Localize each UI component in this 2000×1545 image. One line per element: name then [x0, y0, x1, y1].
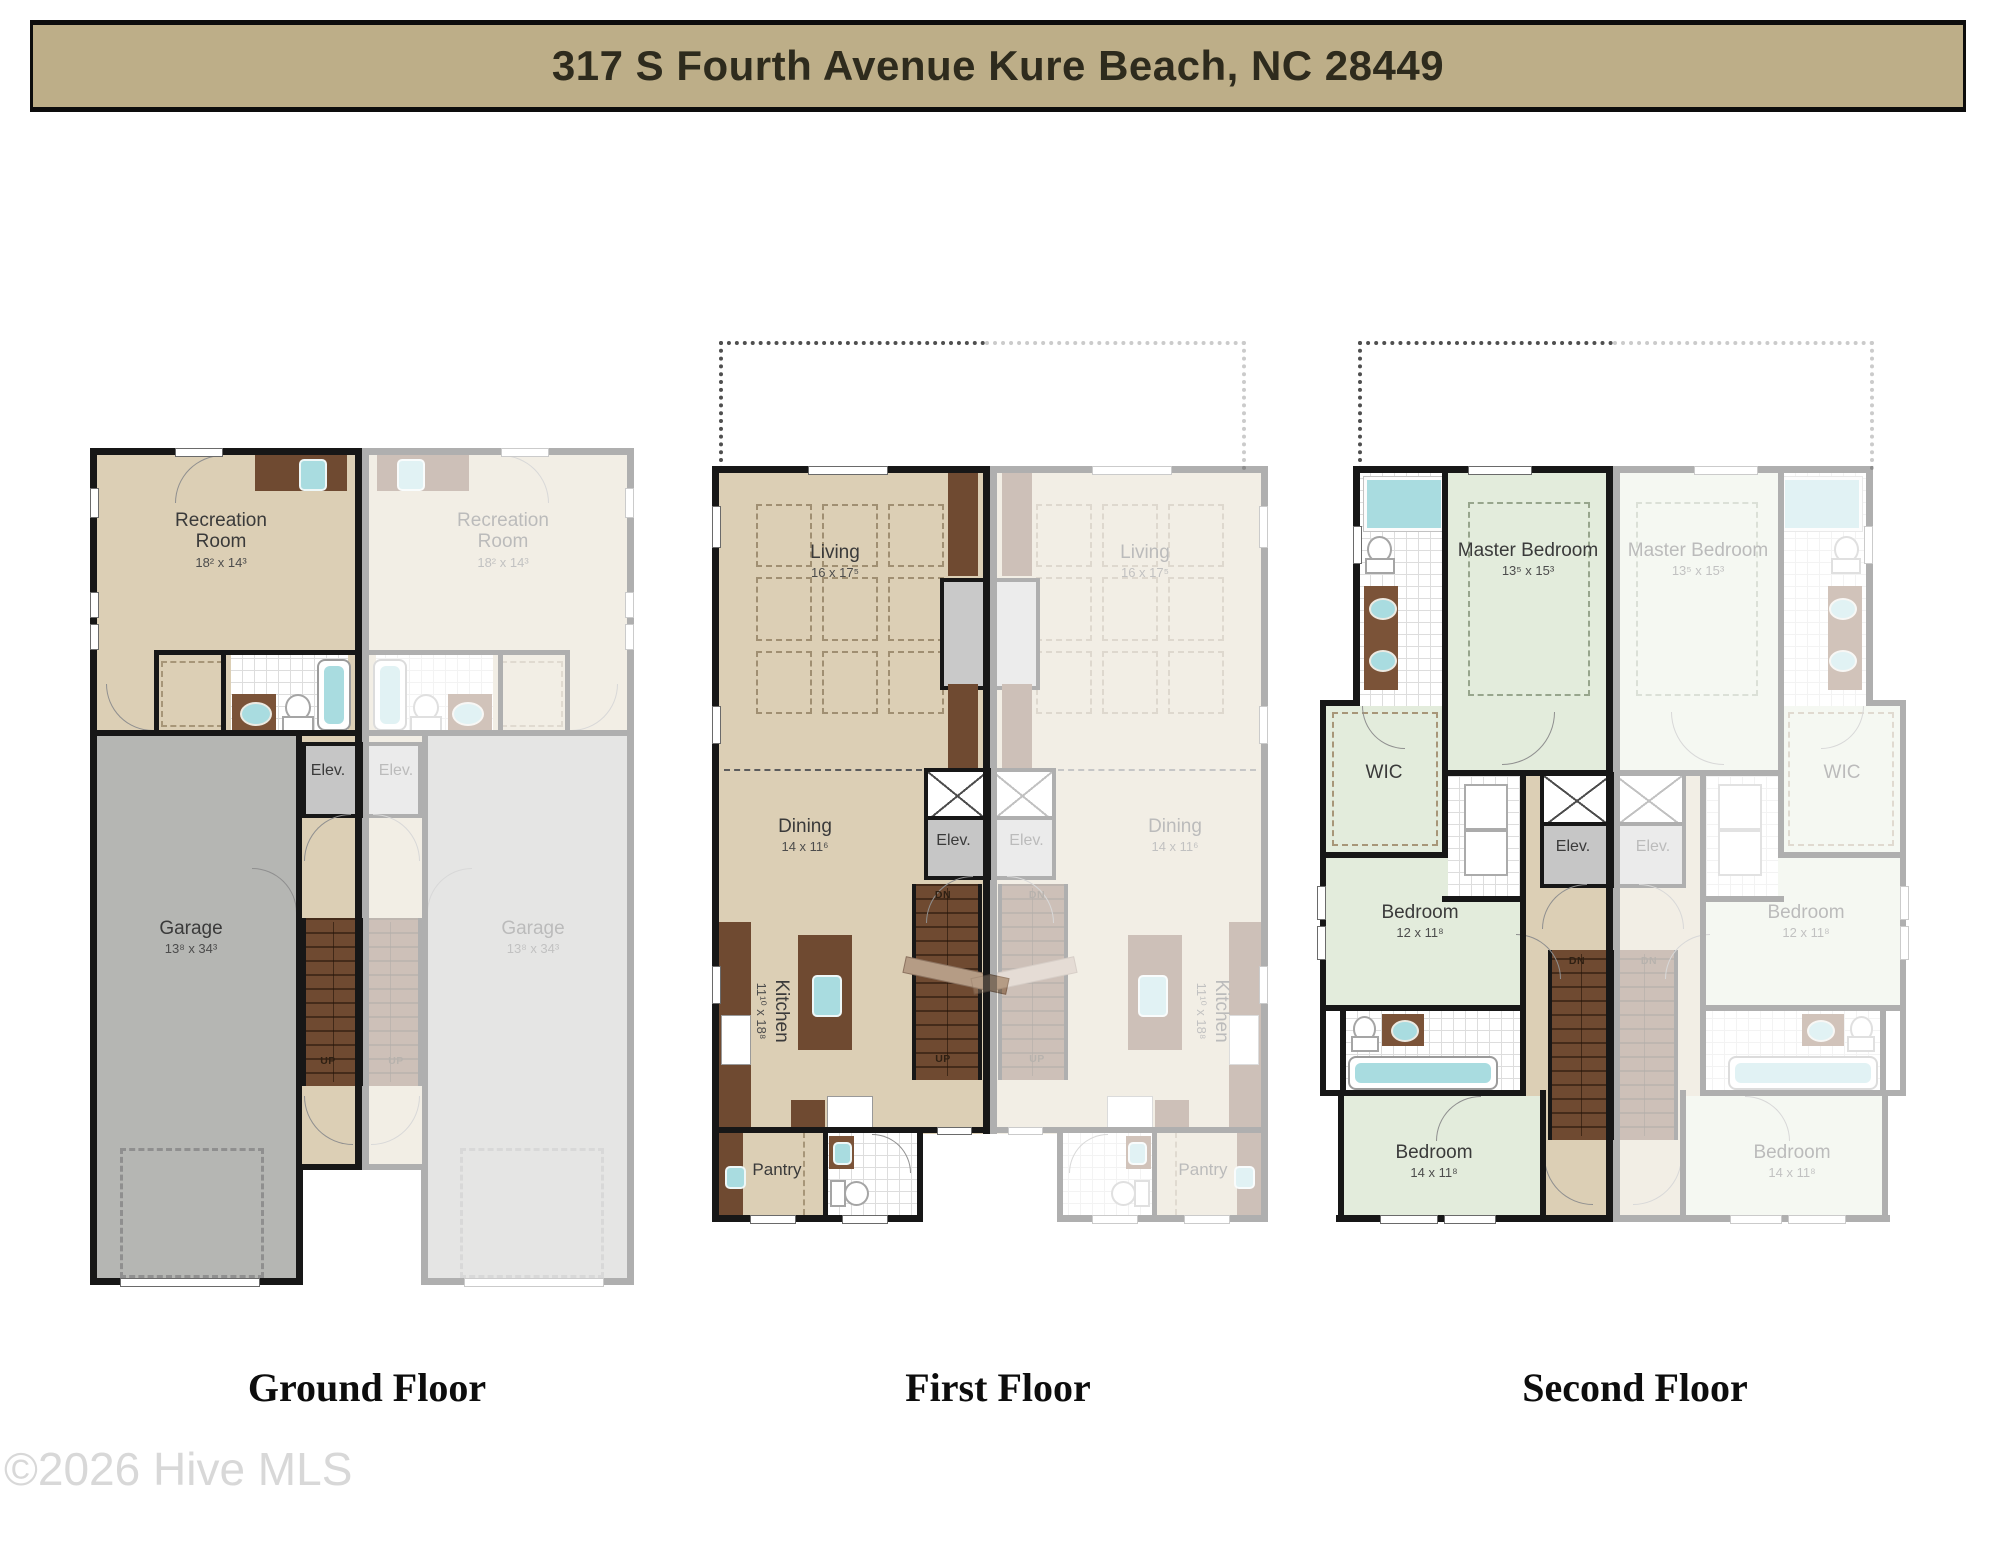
wall: [154, 650, 355, 655]
sink-icon: [833, 1142, 852, 1165]
wall: [1778, 466, 1784, 706]
wall: [1261, 466, 1268, 1222]
sink-icon: [240, 702, 272, 726]
sink-icon: [452, 702, 484, 726]
wall: [1880, 1005, 1886, 1096]
vanity-icon: [232, 694, 276, 732]
wall: [823, 1132, 828, 1215]
window: [1317, 926, 1326, 960]
toilet-icon: [1834, 536, 1862, 574]
window: [90, 592, 99, 618]
room-label-elevator: Elev.: [924, 832, 983, 850]
room-name: Elev.: [1540, 838, 1606, 856]
window: [1788, 1215, 1846, 1224]
vanity-icon: [1126, 1136, 1151, 1169]
closet-outline: [501, 661, 563, 727]
elevator-cab: [361, 742, 422, 818]
vanity-icon: [448, 694, 492, 732]
caption-ground-floor: Ground Floor: [212, 1364, 522, 1411]
double-vanity-icon: [1828, 586, 1862, 690]
door-opening: [175, 448, 223, 457]
bed-outline: [1468, 502, 1590, 696]
window: [1184, 1215, 1230, 1224]
ground-floor-faded-unit: Recreation Room 18² x 14³ Garage 13⁸ x 3…: [362, 448, 634, 1285]
deck-door-opening: [1694, 466, 1758, 475]
window: [842, 1215, 888, 1224]
wall: [1340, 1005, 1346, 1096]
stairs-up-label: UP: [1012, 1054, 1062, 1066]
room-dims: 14 x 11⁸: [1364, 1166, 1504, 1181]
room-name: WIC: [1792, 762, 1892, 783]
wall: [917, 1127, 923, 1222]
room-label-wic: WIC: [1334, 762, 1434, 783]
built-in-cabinet: [948, 470, 978, 576]
wall: [712, 466, 719, 1222]
wall: [422, 736, 428, 1170]
fridge-icon: [1107, 1096, 1153, 1129]
room-dims: 12 x 11⁸: [1736, 926, 1876, 941]
dryer-icon: [1464, 830, 1508, 876]
stairs-down-label: DN: [1552, 956, 1602, 968]
toilet-icon: [281, 694, 311, 732]
kitchen-cabinet: [791, 1100, 825, 1127]
stairs-down-label: DN: [918, 890, 968, 902]
rug-outline: [756, 504, 944, 714]
window: [712, 706, 721, 744]
built-in-cabinet: [1002, 684, 1032, 768]
fireplace: [940, 578, 988, 690]
room-name: Elev.: [296, 762, 360, 780]
wall: [1442, 466, 1448, 706]
wall: [565, 650, 570, 736]
wall: [90, 448, 362, 455]
room-label-dining: Dining 14 x 11⁶: [735, 816, 875, 855]
room-divider-dashed: [1058, 769, 1256, 771]
wall: [1320, 1005, 1526, 1011]
kitchen-island: [1128, 935, 1182, 1050]
wall: [221, 650, 226, 736]
wall: [1613, 466, 1620, 1222]
window: [90, 488, 99, 518]
rug-outline: [1036, 504, 1224, 714]
room-label-elevator: Elev.: [1540, 838, 1606, 856]
room-name: Garage: [121, 918, 261, 939]
wall: [498, 650, 503, 736]
wall: [1442, 700, 1448, 858]
room-label-pantry: Pantry: [737, 1160, 817, 1179]
room-name: Kitchen: [1211, 951, 1232, 1071]
wall: [1057, 1215, 1268, 1222]
room-dims: 13⁸ x 34³: [463, 942, 603, 957]
room-dims: 14 x 11⁶: [1105, 840, 1245, 855]
room-divider-dashed: [724, 769, 922, 771]
wall: [1866, 466, 1873, 706]
window: [1900, 886, 1909, 920]
room-name: Garage: [463, 918, 603, 939]
wall: [296, 736, 302, 1170]
window: [1444, 1215, 1496, 1224]
fireplace: [992, 578, 1040, 690]
fridge-icon: [827, 1096, 873, 1129]
range-icon: [721, 1015, 751, 1065]
room-dims: 14 x 11⁸: [1722, 1166, 1862, 1181]
window: [625, 592, 634, 618]
room-label-garage: Garage 13⁸ x 34³: [463, 918, 603, 957]
range-icon: [1229, 1015, 1259, 1065]
vanity-icon: [1802, 1014, 1844, 1046]
sink-icon: [1807, 1020, 1835, 1042]
window: [750, 1215, 796, 1224]
room-label-elevator: Elev.: [997, 832, 1056, 850]
room-name: Bedroom: [1350, 902, 1490, 923]
garage-door-opening: [464, 1278, 604, 1287]
room-label-bedroom: Bedroom 12 x 11⁸: [1350, 902, 1490, 941]
elevator-cab: [302, 742, 363, 818]
wall: [1152, 1132, 1157, 1215]
deck-door-opening: [1092, 466, 1172, 475]
window: [1353, 526, 1362, 564]
room-label-kitchen: Kitchen 11¹⁰ x 18⁸: [748, 951, 792, 1071]
wall: [296, 1164, 362, 1170]
room-dims: 18² x 14³: [433, 556, 573, 571]
wall: [1700, 1005, 1906, 1011]
first-floor-faded-unit: Living 16 x 17⁵ Dining 14 x 11⁶ Kitchen …: [990, 466, 1268, 1222]
deck-railing-faded: [1613, 341, 1874, 470]
window: [712, 506, 721, 548]
window: [712, 966, 721, 1004]
room-name: Pantry: [1163, 1160, 1243, 1179]
toilet-icon: [1850, 1016, 1876, 1052]
room-label-garage: Garage 13⁸ x 34³: [121, 918, 261, 957]
deck-door-opening: [1468, 466, 1532, 475]
window: [1864, 526, 1873, 564]
wall: [1778, 852, 1906, 858]
room-name: Elev.: [997, 832, 1056, 850]
built-in-cabinet: [948, 684, 978, 768]
first-floor-active-unit: Living 16 x 17⁵ Dining 14 x 11⁶ Kitchen …: [712, 466, 990, 1222]
wall: [362, 448, 634, 455]
kitchen-island: [798, 935, 852, 1050]
bathtub-icon: [1348, 1056, 1498, 1090]
room-name: Elev.: [924, 832, 983, 850]
kitchen-cabinet: [1155, 1100, 1189, 1127]
room-label-recreation: Recreation Room 18² x 14³: [151, 510, 291, 570]
wall: [1338, 1090, 1344, 1215]
bathtub-icon: [1728, 1056, 1878, 1090]
deck-railing: [719, 341, 993, 470]
room-label-living: Living 16 x 17⁵: [1075, 542, 1215, 581]
double-vanity-icon: [1364, 586, 1398, 690]
sink-icon: [1138, 975, 1168, 1017]
sink-icon: [1369, 598, 1397, 620]
room-dims: 16 x 17⁵: [1075, 566, 1215, 581]
address-banner: 317 S Fourth Avenue Kure Beach, NC 28449: [30, 20, 1966, 112]
stairs-up-label: UP: [918, 1054, 968, 1066]
room-label-recreation: Recreation Room 18² x 14³: [433, 510, 573, 570]
wall: [1320, 1090, 1522, 1096]
wall: [154, 650, 159, 736]
deck-railing: [1358, 341, 1621, 470]
deck-door-opening: [808, 466, 888, 475]
room-name: Recreation Room: [151, 510, 291, 553]
window: [1259, 706, 1268, 744]
room-name: Elev.: [1620, 838, 1686, 856]
room-name: Master Bedroom: [1447, 540, 1609, 561]
wall: [1778, 700, 1784, 858]
wall: [1613, 770, 1784, 776]
bathtub-icon: [317, 659, 351, 731]
sink-icon: [812, 975, 842, 1017]
room-name: WIC: [1334, 762, 1434, 783]
room-label-bedroom: Bedroom 12 x 11⁸: [1736, 902, 1876, 941]
window: [1730, 1215, 1782, 1224]
wall: [1520, 770, 1526, 1096]
toilet-icon: [830, 1178, 866, 1205]
room-name: Elev.: [364, 762, 428, 780]
floorplan-sheet: 317 S Fourth Avenue Kure Beach, NC 28449: [0, 0, 2000, 1545]
room-dims: 13⁵ x 15³: [1447, 564, 1609, 579]
stairs-down-label: DN: [1624, 956, 1674, 968]
room-label-dining: Dining 14 x 11⁶: [1105, 816, 1245, 855]
room-name: Dining: [735, 816, 875, 837]
caption-first-floor: First Floor: [840, 1364, 1156, 1411]
sink-icon: [299, 459, 327, 491]
room-label-kitchen: Kitchen 11¹⁰ x 18⁸: [1188, 951, 1232, 1071]
room-name: Bedroom: [1364, 1142, 1504, 1163]
wall: [1882, 1090, 1888, 1215]
vanity-icon: [829, 1136, 854, 1169]
sink-icon: [397, 459, 425, 491]
room-label-living: Living 16 x 17⁵: [765, 542, 905, 581]
window: [937, 1127, 972, 1135]
washer-icon: [1718, 784, 1762, 830]
window: [625, 624, 634, 650]
door-opening: [501, 448, 549, 457]
wall: [1057, 1127, 1063, 1222]
toilet-icon: [1364, 536, 1392, 574]
room-label-bedroom: Bedroom 14 x 11⁸: [1364, 1142, 1504, 1181]
room-label-master-bedroom: Master Bedroom 13⁵ x 15³: [1447, 540, 1609, 579]
window: [1259, 506, 1268, 548]
wall: [1700, 770, 1706, 1096]
sink-icon: [1829, 650, 1857, 672]
bed-outline: [1636, 502, 1758, 696]
toilet-icon: [413, 694, 443, 732]
shower-icon: [1782, 477, 1862, 531]
room-dims: 11¹⁰ x 18⁸: [1193, 951, 1208, 1071]
room-name: Master Bedroom: [1617, 540, 1779, 561]
washer-icon: [1464, 784, 1508, 830]
parking-pad-outline: [120, 1148, 264, 1278]
ground-floor-active-unit: Recreation Room 18² x 14³ Garage 13⁸ x 3…: [90, 448, 362, 1285]
room-label-elevator: Elev.: [364, 762, 428, 780]
window: [1259, 966, 1268, 1004]
room-label-master-bedroom: Master Bedroom 13⁵ x 15³: [1617, 540, 1779, 579]
toilet-icon: [1350, 1016, 1376, 1052]
wall: [1320, 700, 1360, 706]
sink-icon: [1391, 1020, 1419, 1042]
room-dims: 18² x 14³: [151, 556, 291, 571]
window: [625, 488, 634, 518]
wall: [1866, 700, 1906, 706]
wall: [990, 466, 997, 1134]
window: [1008, 1127, 1043, 1135]
room-label-wic: WIC: [1792, 762, 1892, 783]
room-dims: 16 x 17⁵: [765, 566, 905, 581]
sink-icon: [1369, 650, 1397, 672]
room-name: Recreation Room: [433, 510, 573, 553]
built-in-cabinet: [1002, 470, 1032, 576]
shower-icon: [1364, 477, 1444, 531]
wall: [1320, 852, 1448, 858]
sink-icon: [1128, 1142, 1147, 1165]
room-name: Living: [1075, 542, 1215, 563]
room-label-elevator: Elev.: [1620, 838, 1686, 856]
stairs-down-label: DN: [1012, 890, 1062, 902]
room-dims: 13⁸ x 34³: [121, 942, 261, 957]
caption-second-floor: Second Floor: [1478, 1364, 1792, 1411]
parking-pad-outline: [460, 1148, 604, 1278]
room-label-bedroom: Bedroom 14 x 11⁸: [1722, 1142, 1862, 1181]
wall: [1353, 466, 1360, 706]
stairs-up-label: UP: [296, 1056, 360, 1068]
room-name: Kitchen: [771, 951, 792, 1071]
window: [90, 624, 99, 650]
wall: [362, 1164, 428, 1170]
second-floor-active-unit: Master Bedroom 13⁵ x 15³ WIC Bedroom 12 …: [1316, 466, 1613, 1222]
garage-door-opening: [120, 1278, 260, 1287]
stairs-up-label: UP: [364, 1056, 428, 1068]
wall: [90, 448, 97, 1285]
address-title: 317 S Fourth Avenue Kure Beach, NC 28449: [552, 42, 1444, 90]
window: [1092, 1215, 1138, 1224]
window: [1317, 886, 1326, 920]
mls-watermark: ©2026 Hive MLS: [4, 1442, 352, 1496]
room-dims: 12 x 11⁸: [1350, 926, 1490, 941]
closet-outline: [161, 661, 223, 727]
wall: [1680, 1090, 1686, 1222]
sink-icon: [1829, 598, 1857, 620]
wall: [1442, 770, 1613, 776]
room-label-elevator: Elev.: [296, 762, 360, 780]
room-label-pantry: Pantry: [1163, 1160, 1243, 1179]
vanity-icon: [1382, 1014, 1424, 1046]
room-name: Living: [765, 542, 905, 563]
window: [1380, 1215, 1438, 1224]
wall: [712, 1215, 923, 1222]
room-dims: 13⁵ x 15³: [1617, 564, 1779, 579]
toilet-icon: [1114, 1178, 1150, 1205]
wall: [1540, 1090, 1546, 1222]
deck-railing-faded: [985, 341, 1246, 470]
wall: [1704, 1090, 1906, 1096]
wall: [627, 448, 634, 1285]
room-name: Pantry: [737, 1160, 817, 1179]
window: [1900, 926, 1909, 960]
room-name: Bedroom: [1736, 902, 1876, 923]
room-dims: 14 x 11⁶: [735, 840, 875, 855]
wall: [421, 1164, 428, 1285]
wall: [296, 1164, 303, 1285]
dryer-icon: [1718, 830, 1762, 876]
second-floor-faded-unit: Master Bedroom 13⁵ x 15³ WIC Bedroom 12 …: [1613, 466, 1910, 1222]
wall: [369, 650, 570, 655]
room-name: Dining: [1105, 816, 1245, 837]
room-name: Bedroom: [1722, 1142, 1862, 1163]
bathtub-icon: [373, 659, 407, 731]
room-dims: 11¹⁰ x 18⁸: [753, 951, 768, 1071]
